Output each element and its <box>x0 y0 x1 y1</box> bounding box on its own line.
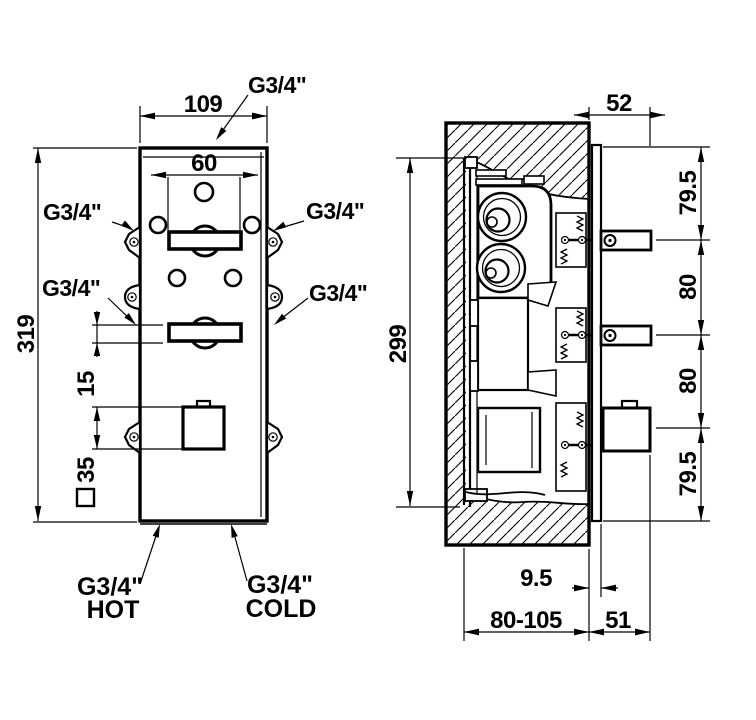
dim-label-15: 15 <box>73 371 100 397</box>
dim-label-35: 35 <box>73 457 100 483</box>
dim-width-109: 109 <box>140 91 267 143</box>
hot-word-label: HOT <box>87 596 140 624</box>
square-knob <box>183 401 224 449</box>
dim-label-109: 109 <box>184 91 223 118</box>
outlet-pipe-lower <box>601 326 651 345</box>
square-section-symbol <box>77 489 94 506</box>
dim-label-51: 51 <box>605 607 631 634</box>
dim-label-52: 52 <box>606 90 632 117</box>
dim-label-9-5: 9.5 <box>520 565 552 592</box>
port-label-right-lower: G3/4" <box>309 280 367 306</box>
dim-label-319: 319 <box>13 315 40 354</box>
outlet-pipe-upper <box>601 231 651 250</box>
valve-installation-drawing: 109 60 319 15 <box>0 0 756 720</box>
dim-label-79-5-top: 79.5 <box>675 170 702 215</box>
cold-word-label: COLD <box>246 595 317 623</box>
cold-inlet-label: G3/4" COLD <box>246 571 317 623</box>
dim-label-80-upper: 80 <box>675 274 702 300</box>
side-knob <box>603 401 650 451</box>
dim-label-79-5-bottom: 79.5 <box>675 451 702 496</box>
dim-label-80-lower: 80 <box>675 368 702 394</box>
port-label-right-upper: G3/4" <box>306 198 364 224</box>
port-label-top: G3/4" <box>248 72 306 98</box>
valve-body-section <box>464 156 556 507</box>
hot-inlet-label: G3/4" HOT <box>77 573 143 624</box>
technical-drawing-page: 109 60 319 15 <box>0 0 756 720</box>
upper-handle <box>169 232 241 249</box>
front-view: 109 60 319 15 <box>13 72 367 624</box>
dim-label-80-105: 80-105 <box>490 607 562 634</box>
port-label-left-lower: G3/4" <box>42 275 100 301</box>
dim-label-60: 60 <box>191 150 217 177</box>
side-view: 52 79.5 80 80 79.5 <box>385 90 710 641</box>
port-label-left-upper: G3/4" <box>43 199 101 225</box>
dim-label-299: 299 <box>385 325 412 364</box>
lower-handle <box>169 324 241 341</box>
